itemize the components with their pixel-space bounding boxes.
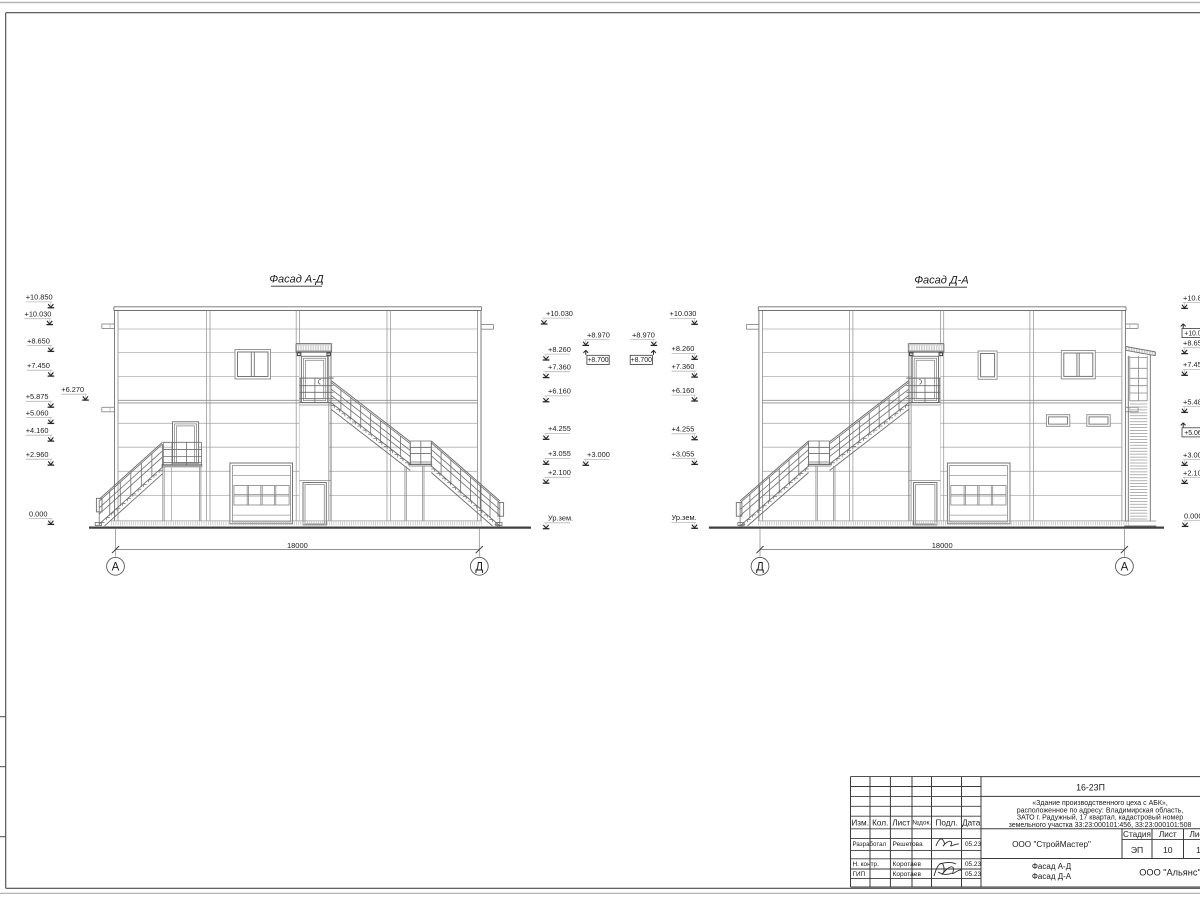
svg-text:земельного участка 33:23:00010: земельного участка 33:23:000101:456, 33:… [1009,822,1192,829]
svg-text:+7.450: +7.450 [27,361,50,370]
svg-text:+8.970: +8.970 [587,330,610,339]
svg-text:+8.700: +8.700 [587,357,608,364]
svg-text:+3.000: +3.000 [587,450,610,459]
svg-text:+2.960: +2.960 [26,450,49,459]
svg-text:+2.100: +2.100 [548,468,571,477]
svg-text:10: 10 [1163,845,1173,855]
svg-text:+3.055: +3.055 [672,449,695,458]
svg-text:Лис: Лис [1189,830,1200,839]
svg-text:Решетова: Решетова [893,841,924,848]
svg-text:А: А [112,561,120,573]
svg-text:+10.030: +10.030 [546,309,573,318]
svg-text:ЗАТО г. Радужный, 17 квартал,: ЗАТО г. Радужный, 17 квартал, кадастровы… [1017,814,1183,822]
svg-text:А: А [1121,561,1129,573]
svg-text:+8.260: +8.260 [548,345,571,354]
svg-text:ГИП: ГИП [853,871,866,878]
svg-text:0.000: 0.000 [29,509,48,518]
svg-text:+5.060: +5.060 [1184,430,1200,437]
svg-text:+8.700: +8.700 [631,357,652,364]
svg-text:ООО "СтройМастер": ООО "СтройМастер" [1012,840,1091,849]
svg-text:18000: 18000 [287,541,308,550]
svg-text:Подл.: Подл. [935,818,957,827]
svg-text:расположенное по адресу: Влади: расположенное по адресу: Владимирская об… [1017,806,1184,814]
svg-text:ЭП: ЭП [1131,845,1143,855]
svg-text:Кол.: Кол. [872,818,888,827]
svg-text:16-23П: 16-23П [1076,783,1105,793]
svg-text:+4.160: +4.160 [26,426,49,435]
svg-text:Фасад А-Д: Фасад А-Д [1032,862,1072,871]
svg-text:Лист: Лист [1159,830,1177,839]
svg-text:Лист: Лист [892,818,910,827]
svg-text:+3.000: +3.000 [1183,450,1200,459]
svg-text:Фасад Д-А: Фасад Д-А [1032,872,1072,881]
svg-text:«Здание производственного цеха: «Здание производственного цеха с АБК», [1032,800,1168,807]
svg-text:Ур.зем.: Ур.зем. [548,514,573,523]
svg-text:+4.255: +4.255 [548,424,571,433]
svg-text:+8.260: +8.260 [672,344,695,353]
svg-text:+10.030: +10.030 [670,309,697,318]
svg-text:+6.270: +6.270 [61,385,84,394]
svg-text:+8.650: +8.650 [27,336,50,345]
svg-text:+10.850: +10.850 [1183,293,1200,302]
svg-text:+4.255: +4.255 [672,425,695,434]
svg-text:18000: 18000 [932,541,953,550]
svg-text:05.23: 05.23 [965,871,981,878]
svg-text:Дата: Дата [962,818,981,827]
svg-text:+7.360: +7.360 [548,363,571,372]
svg-text:+5.875: +5.875 [26,392,49,401]
svg-text:+8.650: +8.650 [1183,339,1200,348]
svg-text:Изм.: Изм. [851,818,869,827]
svg-text:Н. контр.: Н. контр. [853,861,880,868]
svg-text:+10.030: +10.030 [1184,331,1200,338]
svg-text:Д: Д [756,561,764,573]
svg-text:Разработал: Разработал [853,841,887,848]
svg-text:+3.055: +3.055 [548,449,571,458]
svg-text:+5.485: +5.485 [1183,397,1200,406]
svg-text:+10.850: +10.850 [26,293,53,302]
svg-text:+2.100: +2.100 [1183,468,1200,477]
svg-text:+6.160: +6.160 [672,386,695,395]
svg-text:+10.030: +10.030 [25,310,52,319]
svg-text:+7.360: +7.360 [672,362,695,371]
svg-text:Д: Д [475,561,483,573]
svg-text:05.23: 05.23 [965,841,981,848]
svg-text:Стадия: Стадия [1123,830,1151,839]
svg-text:+8.970: +8.970 [632,330,655,339]
svg-text:+5.060: +5.060 [26,408,49,417]
svg-text:№док.: №док. [912,820,931,827]
svg-text:Коротаев: Коротаев [893,871,922,878]
svg-text:05.23: 05.23 [965,861,981,868]
svg-text:0.000: 0.000 [1184,511,1200,520]
svg-text:Ур.зем.: Ур.зем. [672,513,697,522]
svg-text:ООО "Альянс": ООО "Альянс" [1139,868,1200,878]
svg-text:+7.450: +7.450 [1183,360,1200,369]
svg-text:Фасад А-Д: Фасад А-Д [269,274,324,286]
svg-text:1: 1 [1196,845,1200,855]
svg-text:Фасад Д-А: Фасад Д-А [914,275,968,287]
svg-text:+6.160: +6.160 [548,387,571,396]
svg-text:Коротаев: Коротаев [893,861,922,868]
